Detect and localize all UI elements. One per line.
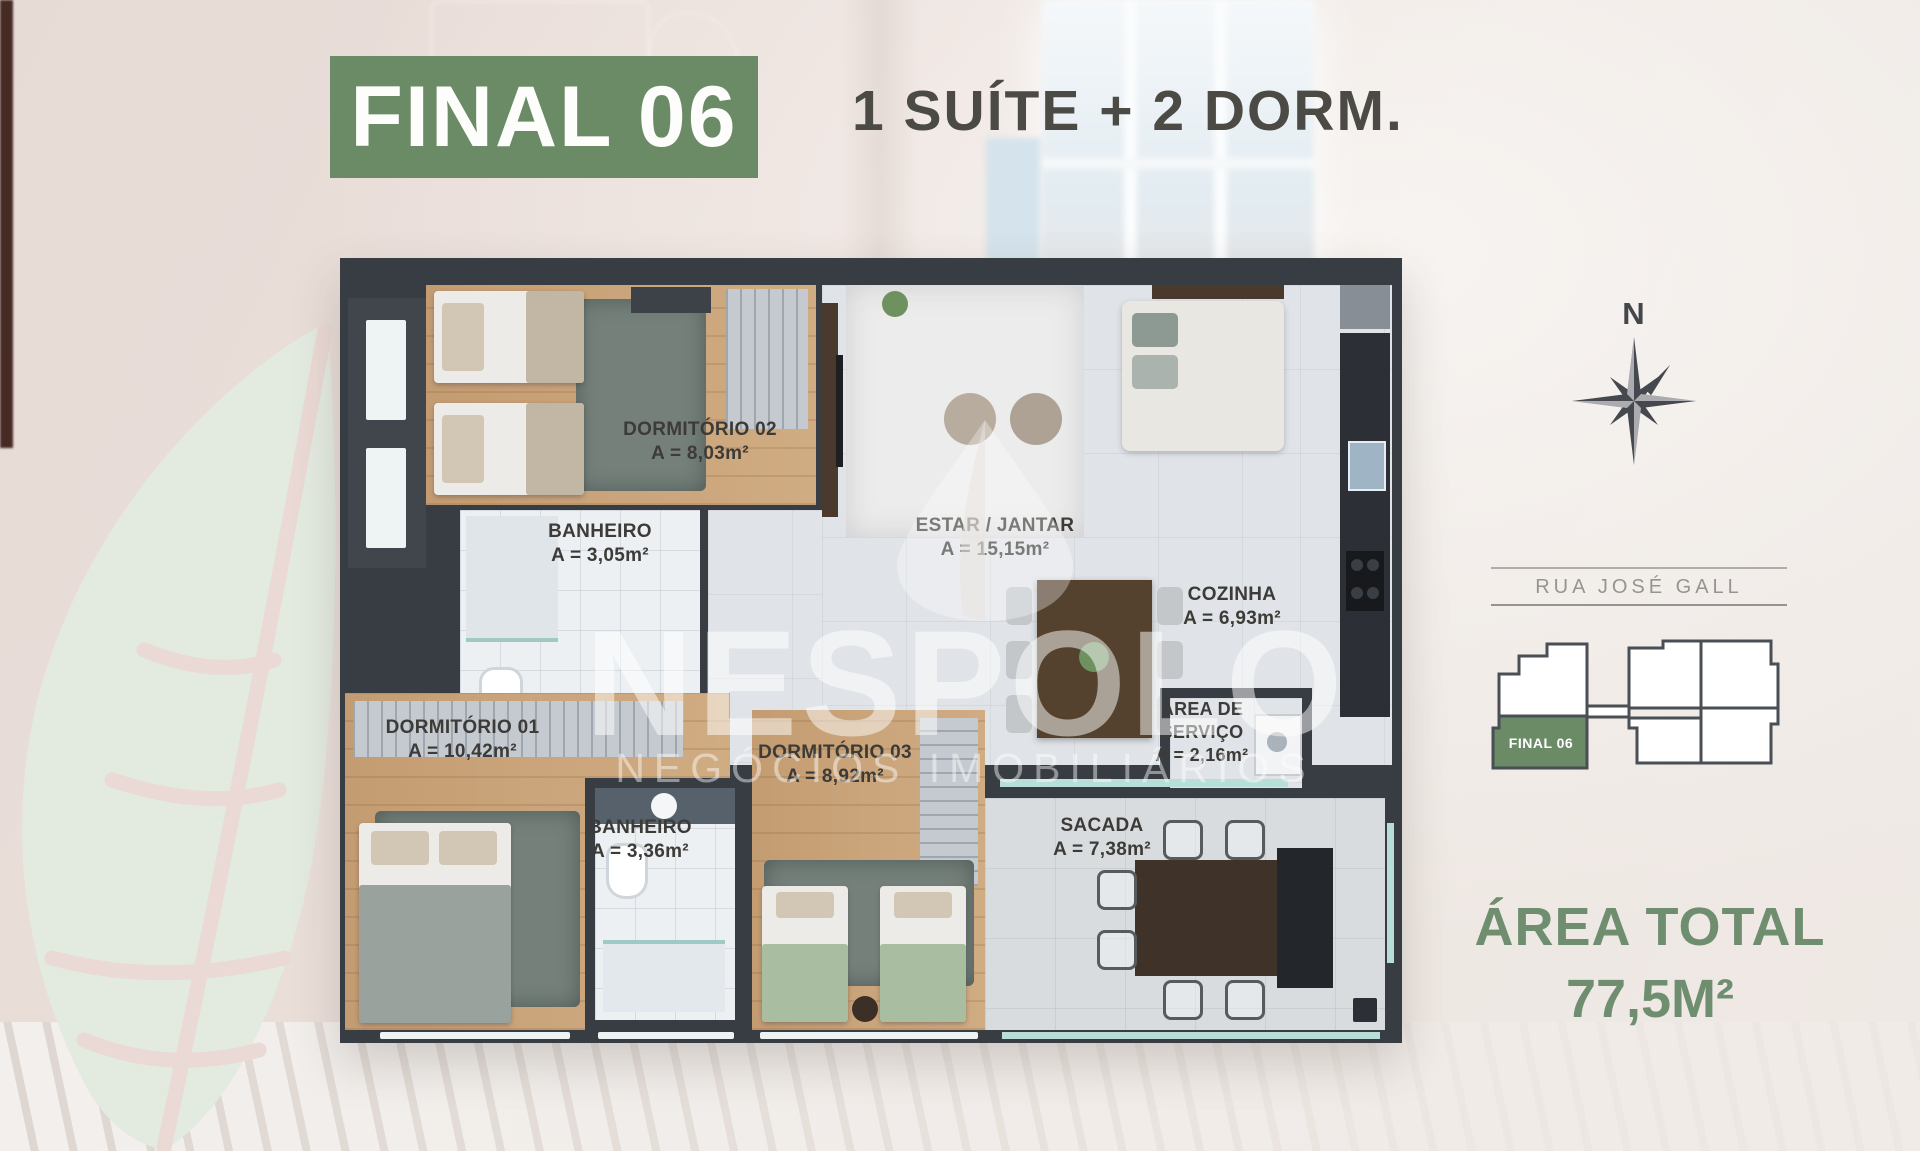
room-area: A = 7,38m² bbox=[1002, 838, 1202, 862]
shower bbox=[603, 940, 725, 1012]
keyplan-unit-label: FINAL 06 bbox=[1509, 735, 1573, 751]
wire-chair bbox=[1225, 820, 1265, 860]
compass-north-label: N bbox=[1568, 296, 1700, 332]
plant bbox=[882, 291, 908, 317]
pillow bbox=[371, 831, 429, 865]
blanket bbox=[359, 885, 511, 1023]
nightstand bbox=[852, 996, 878, 1022]
blanket bbox=[880, 944, 966, 1022]
single-bed bbox=[434, 291, 584, 383]
nespolo-drop-logo-icon bbox=[885, 415, 1085, 625]
single-bed bbox=[880, 886, 966, 1022]
marketing-floorplan-poster: FINAL 06 1 SUÍTE + 2 DORM. bbox=[0, 0, 1920, 1151]
window-mullion bbox=[1042, 158, 1314, 169]
street-label: RUA JOSÉ GALL bbox=[1535, 575, 1743, 598]
room-area: A = 10,42m² bbox=[340, 740, 585, 764]
sofa bbox=[1122, 301, 1284, 451]
room-area: A = 3,36m² bbox=[540, 840, 740, 864]
fridge bbox=[1340, 285, 1390, 329]
single-bed bbox=[762, 886, 848, 1022]
single-bed bbox=[434, 403, 584, 495]
cushion bbox=[1132, 313, 1178, 347]
window bbox=[760, 1032, 978, 1039]
sideboard bbox=[1152, 285, 1284, 299]
room-dormitorio-02 bbox=[426, 285, 816, 505]
burner bbox=[1351, 587, 1363, 599]
room-name: BANHEIRO bbox=[500, 520, 700, 544]
kitchen-counter bbox=[1340, 333, 1390, 717]
wire-chair bbox=[1097, 930, 1137, 970]
compass-rose-icon bbox=[1568, 332, 1700, 470]
balcony-glass-rail bbox=[1387, 823, 1394, 963]
unit-badge: FINAL 06 bbox=[330, 56, 758, 178]
burner bbox=[1351, 559, 1363, 571]
blanket bbox=[526, 403, 584, 495]
dresser bbox=[631, 287, 711, 313]
room-name: DORMITÓRIO 02 bbox=[580, 418, 820, 442]
leaf-graphic bbox=[0, 318, 344, 1151]
balcony-glass-rail bbox=[1002, 1032, 1380, 1039]
keyplan-unit bbox=[1629, 641, 1701, 708]
keyplan-corridor bbox=[1587, 706, 1629, 717]
room-label-banheiro-suite: BANHEIRO A = 3,36m² bbox=[540, 816, 740, 865]
pillow bbox=[442, 303, 484, 371]
blanket bbox=[762, 944, 848, 1022]
keyplan-unit bbox=[1701, 708, 1778, 763]
room-label-sacada: SACADA A = 7,38m² bbox=[1002, 814, 1202, 863]
burner bbox=[1367, 559, 1379, 571]
pillow bbox=[439, 831, 497, 865]
stone-counter bbox=[1277, 848, 1333, 988]
blanket bbox=[526, 291, 584, 383]
pillow bbox=[442, 415, 484, 483]
outdoor-table bbox=[1135, 860, 1285, 976]
total-area-label: ÁREA TOTAL bbox=[1420, 896, 1880, 958]
keyplan-unit bbox=[1499, 644, 1587, 716]
kitchen-sink bbox=[1348, 441, 1386, 491]
room-label-banheiro-social: BANHEIRO A = 3,05m² bbox=[500, 520, 700, 569]
watermark-brand: NESPOLO bbox=[585, 608, 1345, 758]
window bbox=[380, 1032, 570, 1039]
wire-chair bbox=[1163, 980, 1203, 1020]
watermark-tagline: NEGÓCIOS IMOBILIÁRIOS bbox=[585, 748, 1345, 789]
room-area: A = 8,03m² bbox=[580, 442, 820, 466]
room-area: A = 3,05m² bbox=[500, 544, 700, 568]
room-name: SACADA bbox=[1002, 814, 1202, 838]
wire-chair bbox=[1097, 870, 1137, 910]
burner bbox=[1367, 587, 1379, 599]
wardrobe bbox=[726, 289, 808, 429]
window bbox=[598, 1032, 734, 1039]
pillow bbox=[894, 892, 952, 918]
total-area-value: 77,5M² bbox=[1420, 968, 1880, 1030]
double-bed bbox=[359, 823, 511, 1023]
window bbox=[366, 448, 406, 548]
floor-drain bbox=[1353, 998, 1377, 1022]
stove bbox=[1346, 551, 1384, 611]
keyplan-unit bbox=[1701, 641, 1778, 708]
tv bbox=[836, 355, 843, 467]
unit-subtitle: 1 SUÍTE + 2 DORM. bbox=[852, 78, 1404, 144]
window bbox=[366, 320, 406, 420]
key-plan: RUA JOSÉ GALL FINAL 06 bbox=[1485, 556, 1805, 774]
cushion bbox=[1132, 355, 1178, 389]
wire-chair bbox=[1225, 980, 1265, 1020]
pillow bbox=[776, 892, 834, 918]
room-name: BANHEIRO bbox=[540, 816, 740, 840]
room-name: DORMITÓRIO 01 bbox=[340, 716, 585, 740]
room-label-dormitorio-02: DORMITÓRIO 02 A = 8,03m² bbox=[580, 418, 820, 467]
room-label-dormitorio-01: DORMITÓRIO 01 A = 10,42m² bbox=[340, 716, 585, 765]
total-area-block: ÁREA TOTAL 77,5M² bbox=[1420, 896, 1880, 1030]
compass: N bbox=[1568, 296, 1700, 475]
room-window-bay bbox=[348, 298, 426, 568]
keyplan-unit bbox=[1629, 718, 1701, 763]
